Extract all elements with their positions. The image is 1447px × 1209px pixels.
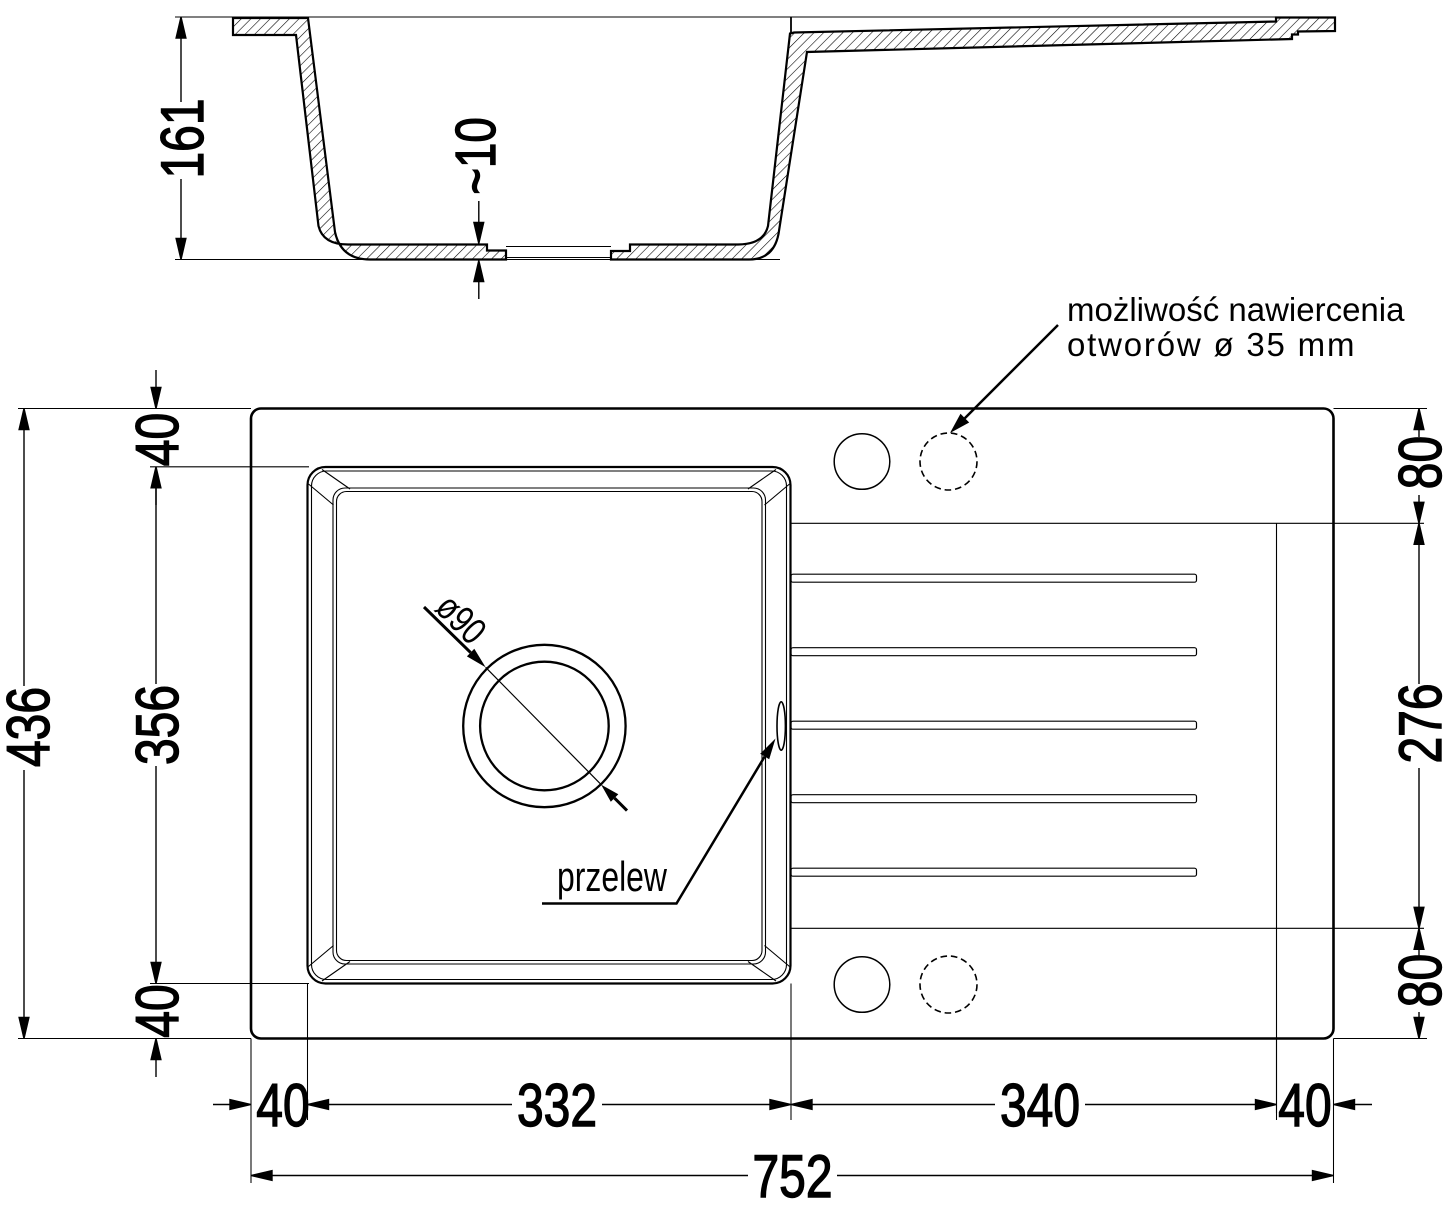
svg-text:161: 161 (149, 98, 216, 178)
svg-text:~10: ~10 (443, 117, 507, 194)
svg-text:752: 752 (752, 1143, 832, 1209)
svg-text:otworów ø 35 mm: otworów ø 35 mm (1067, 326, 1356, 363)
svg-text:332: 332 (517, 1072, 597, 1139)
svg-text:80: 80 (1387, 436, 1447, 489)
svg-text:przelew: przelew (557, 853, 668, 900)
svg-text:340: 340 (1000, 1072, 1080, 1139)
svg-text:436: 436 (0, 687, 62, 767)
svg-text:40: 40 (124, 413, 191, 466)
svg-text:356: 356 (124, 685, 191, 765)
svg-text:40: 40 (1278, 1072, 1331, 1139)
svg-text:40: 40 (256, 1072, 309, 1139)
svg-text:możliwość nawiercenia: możliwość nawiercenia (1067, 291, 1405, 328)
svg-text:276: 276 (1387, 683, 1447, 763)
svg-text:80: 80 (1387, 954, 1447, 1007)
svg-text:40: 40 (124, 984, 191, 1037)
